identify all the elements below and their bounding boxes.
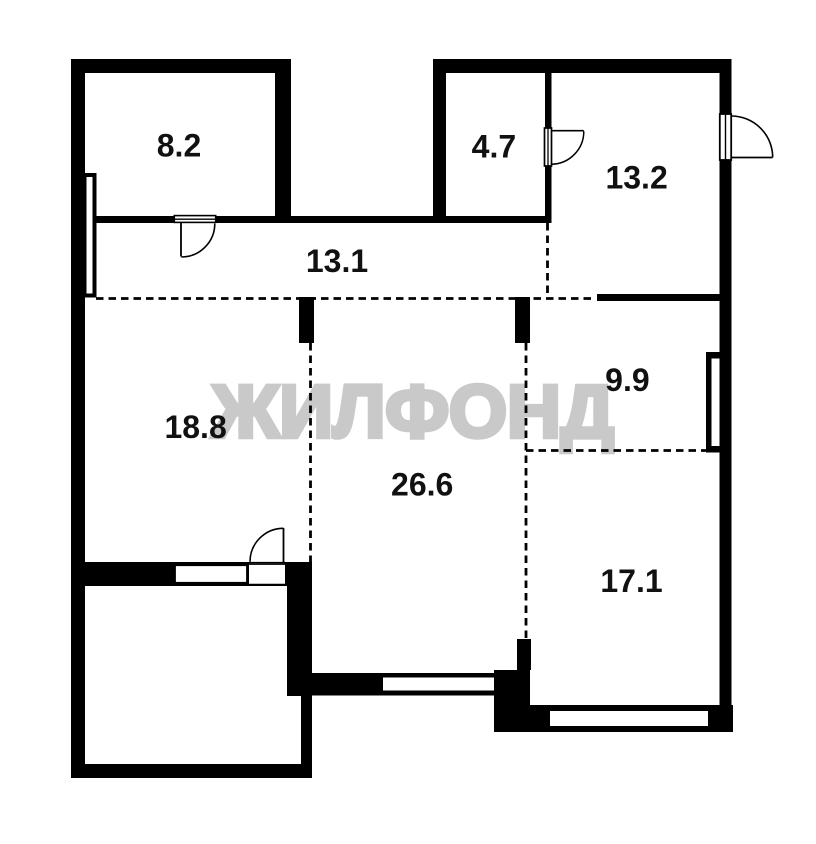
svg-text:9.9: 9.9 — [605, 362, 649, 398]
svg-text:4.7: 4.7 — [472, 128, 516, 164]
svg-text:8.2: 8.2 — [157, 127, 201, 163]
svg-text:ЖИЛФОНД: ЖИЛФОНД — [211, 370, 614, 453]
svg-text:13.1: 13.1 — [306, 243, 368, 279]
svg-text:18.8: 18.8 — [164, 409, 226, 445]
svg-text:13.2: 13.2 — [605, 160, 667, 196]
svg-text:17.1: 17.1 — [600, 563, 662, 599]
svg-text:26.6: 26.6 — [391, 467, 453, 503]
